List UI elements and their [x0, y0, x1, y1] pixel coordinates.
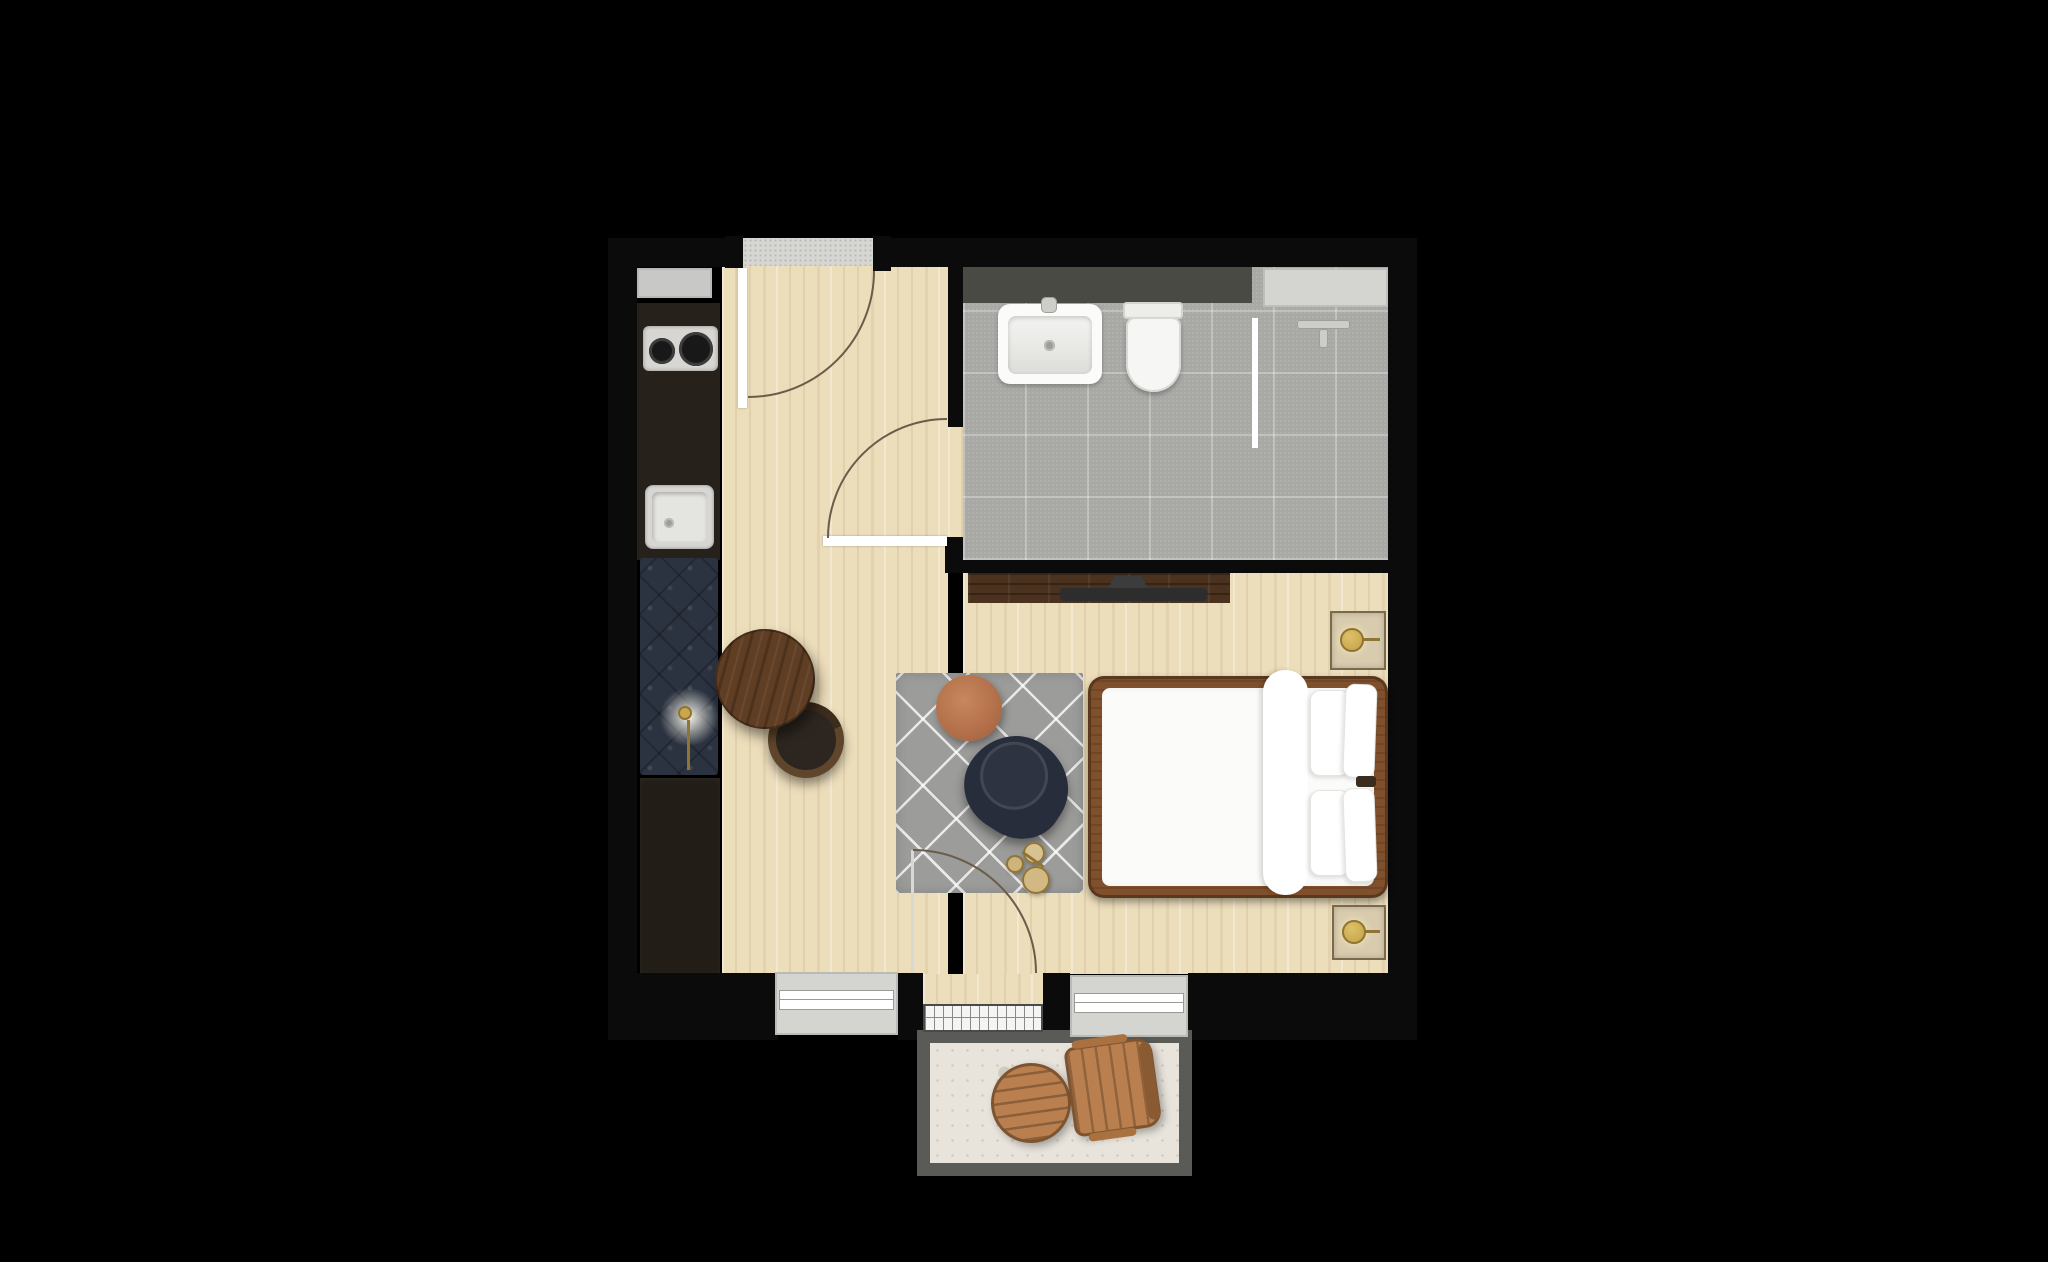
entry-door-post-left — [725, 236, 743, 268]
burner-large — [679, 332, 713, 366]
entry-threshold — [743, 238, 873, 266]
wall-bathroom-left — [948, 238, 963, 427]
brass-side-table-1 — [1006, 855, 1024, 873]
balcony-doorway-floor — [923, 974, 1043, 1005]
pillow-outer-bottom — [1342, 787, 1377, 882]
nightstand-top-lamp-arm — [1362, 638, 1380, 641]
tv — [1060, 588, 1207, 601]
wall-bottom-left — [608, 973, 778, 1040]
entry-door-leaf — [738, 268, 747, 408]
shower-mixer-bar — [1297, 320, 1350, 329]
brass-side-table-3 — [1022, 866, 1050, 894]
floor-plan-canvas — [0, 0, 2048, 1262]
wall-left — [608, 238, 637, 1040]
nightstand-bottom-lamp — [1342, 920, 1366, 944]
nightstand-top-lamp — [1340, 628, 1364, 652]
shower-mixer-stem — [1319, 329, 1328, 348]
wall-bathroom-bottom — [963, 560, 1388, 573]
floor-lamp-stem — [687, 720, 690, 770]
wall-top-right — [885, 238, 1417, 267]
toilet-bowl — [1126, 317, 1181, 392]
window-right-glazing — [1074, 993, 1184, 1013]
window-left-glazing — [779, 990, 894, 1010]
kitchen-sink-drain — [664, 518, 674, 528]
fridge — [637, 268, 712, 298]
balcony-door-track — [923, 1004, 1043, 1032]
bathroom-door-gap-floor — [948, 427, 963, 537]
pillow-outer-top — [1342, 683, 1377, 778]
floor-lamp — [678, 706, 692, 720]
balcony-chair — [1063, 1036, 1163, 1137]
terracotta-pouf — [936, 675, 1002, 741]
wall-bottom-right — [1188, 973, 1417, 1040]
basin-faucet — [1041, 297, 1057, 313]
wardrobe — [640, 778, 720, 973]
coffee-table — [715, 629, 815, 729]
basin-drain — [1044, 340, 1055, 351]
bathroom-door-leaf — [823, 536, 947, 546]
burner-small — [649, 338, 675, 364]
kitchen-sink-basin — [652, 492, 707, 542]
shower-glass-screen — [1252, 318, 1258, 448]
wall-right — [1388, 238, 1417, 1040]
vanity-counter — [963, 267, 1252, 303]
window-left — [775, 972, 898, 1035]
bathroom-window — [1263, 268, 1388, 307]
balcony-door-leaf — [911, 850, 914, 973]
wall-bathroom-door-post — [945, 537, 963, 573]
entry-door-post-right — [873, 236, 891, 271]
window-right — [1070, 975, 1188, 1037]
bed-accessory — [1356, 776, 1376, 787]
nightstand-bottom-lamp-arm — [1364, 930, 1380, 933]
duvet-fold — [1263, 670, 1308, 895]
